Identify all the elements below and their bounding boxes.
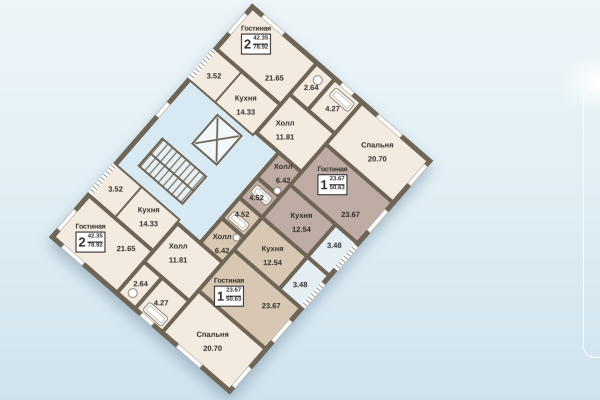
room-area: 2.64 (304, 84, 319, 92)
room-label: 23.67 (262, 302, 281, 310)
room-name: Холл (213, 233, 232, 241)
room-name: Кухня (262, 245, 284, 253)
apartment-areas: 42.35 78.92 (253, 36, 268, 53)
room-name: Кухня (138, 206, 160, 214)
room-area: 23.67 (262, 302, 281, 310)
room-area: 21.65 (117, 245, 136, 253)
room-area: 20.70 (361, 155, 393, 163)
room-area: 14.33 (235, 108, 257, 116)
floor-plan: Гостиная 2 42.35 78.92 21.65 2.64 4.27 Х… (49, 3, 434, 394)
room-name: Холл (276, 119, 295, 127)
room-label: Холл 11.81 (276, 119, 295, 140)
apartment-type-box: 2 42.35 78.92 (75, 232, 105, 253)
room-label: 3.52 (108, 186, 123, 194)
room-area: 4.52 (249, 194, 264, 202)
apartment-total-area: 50.63 (330, 185, 345, 193)
apartment-header: Гостиная 1 23.67 50.63 (317, 166, 347, 195)
apartment-title: Гостиная (317, 166, 347, 173)
room-area: 23.67 (341, 211, 360, 219)
room-name: Кухня (235, 95, 257, 103)
apartment-areas: 23.67 50.63 (226, 288, 241, 305)
room-name: Холл (169, 243, 188, 251)
room-area: 14.33 (138, 220, 160, 228)
apartment-rooms-count: 1 (217, 289, 224, 302)
room-label: Холл 6.42 (213, 233, 232, 254)
apartment-areas: 23.67 50.63 (330, 176, 345, 193)
room-label: 21.65 (265, 75, 284, 83)
room-label: Кухня 14.33 (235, 95, 257, 116)
apartment-type-box: 2 42.35 78.92 (241, 34, 271, 55)
room-label: 2.64 (304, 84, 319, 92)
apartment-type-box: 1 23.67 50.63 (214, 286, 244, 307)
room-area: 12.54 (262, 259, 284, 267)
apartment-type-box: 1 23.67 50.63 (317, 174, 347, 195)
room-label: 4.52 (249, 194, 264, 202)
apartment-total-area: 78.92 (253, 44, 268, 52)
room-label: 2.64 (133, 280, 148, 288)
room-area: 20.70 (196, 344, 228, 352)
room-area: 21.65 (265, 75, 284, 83)
room-area: 3.52 (108, 186, 123, 194)
apartment-living-area: 42.35 (253, 36, 268, 45)
room-area: 3.48 (327, 242, 342, 250)
room-area: 11.81 (276, 133, 295, 141)
apartment-title: Гостиная (75, 224, 105, 231)
apartment-rooms-count: 1 (320, 178, 327, 191)
room-name: Холл (274, 163, 293, 171)
room-area: 2.64 (133, 280, 148, 288)
panel-edge-decoration (583, 88, 600, 358)
apartment-living-area: 23.67 (226, 288, 241, 297)
apartment-total-area: 78.92 (88, 242, 103, 250)
room-label: Холл 6.42 (274, 163, 293, 184)
room-label: Кухня 12.54 (262, 245, 284, 266)
apartment-title: Гостиная (241, 26, 271, 33)
room-name: Кухня (291, 212, 313, 220)
apartment-header: Гостиная 2 42.35 78.92 (75, 224, 105, 253)
room-name: Спальня (196, 331, 228, 339)
room-label: 3.52 (207, 72, 222, 80)
apartment-living-area: 23.67 (330, 176, 345, 185)
room-label: Спальня 20.70 (196, 331, 228, 352)
room-area: 12.54 (291, 225, 313, 233)
room-label: 4.27 (154, 299, 169, 307)
room-area: 4.27 (325, 105, 340, 113)
room-label: Холл 11.81 (169, 243, 188, 264)
apartment-rooms-count: 2 (78, 235, 85, 248)
apartment-rooms-count: 2 (244, 37, 251, 50)
apartment-total-area: 50.63 (226, 296, 241, 304)
room-area: 4.27 (154, 299, 169, 307)
apartment-header: Гостиная 2 42.35 78.92 (241, 26, 271, 55)
room-name: Спальня (361, 141, 393, 149)
room-label: 21.65 (117, 245, 136, 253)
apartment-areas: 42.35 78.92 (88, 234, 103, 251)
apartment-header: Гостиная 1 23.67 50.63 (214, 278, 244, 307)
room-label: 3.48 (327, 242, 342, 250)
room-label: Спальня 20.70 (361, 141, 393, 162)
room-label: 3.48 (293, 281, 308, 289)
room-label: 4.27 (325, 105, 340, 113)
room-label: Кухня 12.54 (291, 212, 313, 233)
apartment-title: Гостиная (214, 278, 244, 285)
room-label: 4.52 (235, 211, 250, 219)
room-label: Кухня 14.33 (138, 206, 160, 227)
room-area: 4.52 (235, 211, 250, 219)
apartment-living-area: 42.35 (88, 234, 103, 243)
room-area: 3.48 (293, 281, 308, 289)
room-area: 11.81 (169, 256, 188, 264)
room-area: 6.42 (213, 247, 232, 255)
room-area: 6.42 (274, 176, 293, 184)
room-area: 3.52 (207, 72, 222, 80)
room-label: 23.67 (341, 211, 360, 219)
